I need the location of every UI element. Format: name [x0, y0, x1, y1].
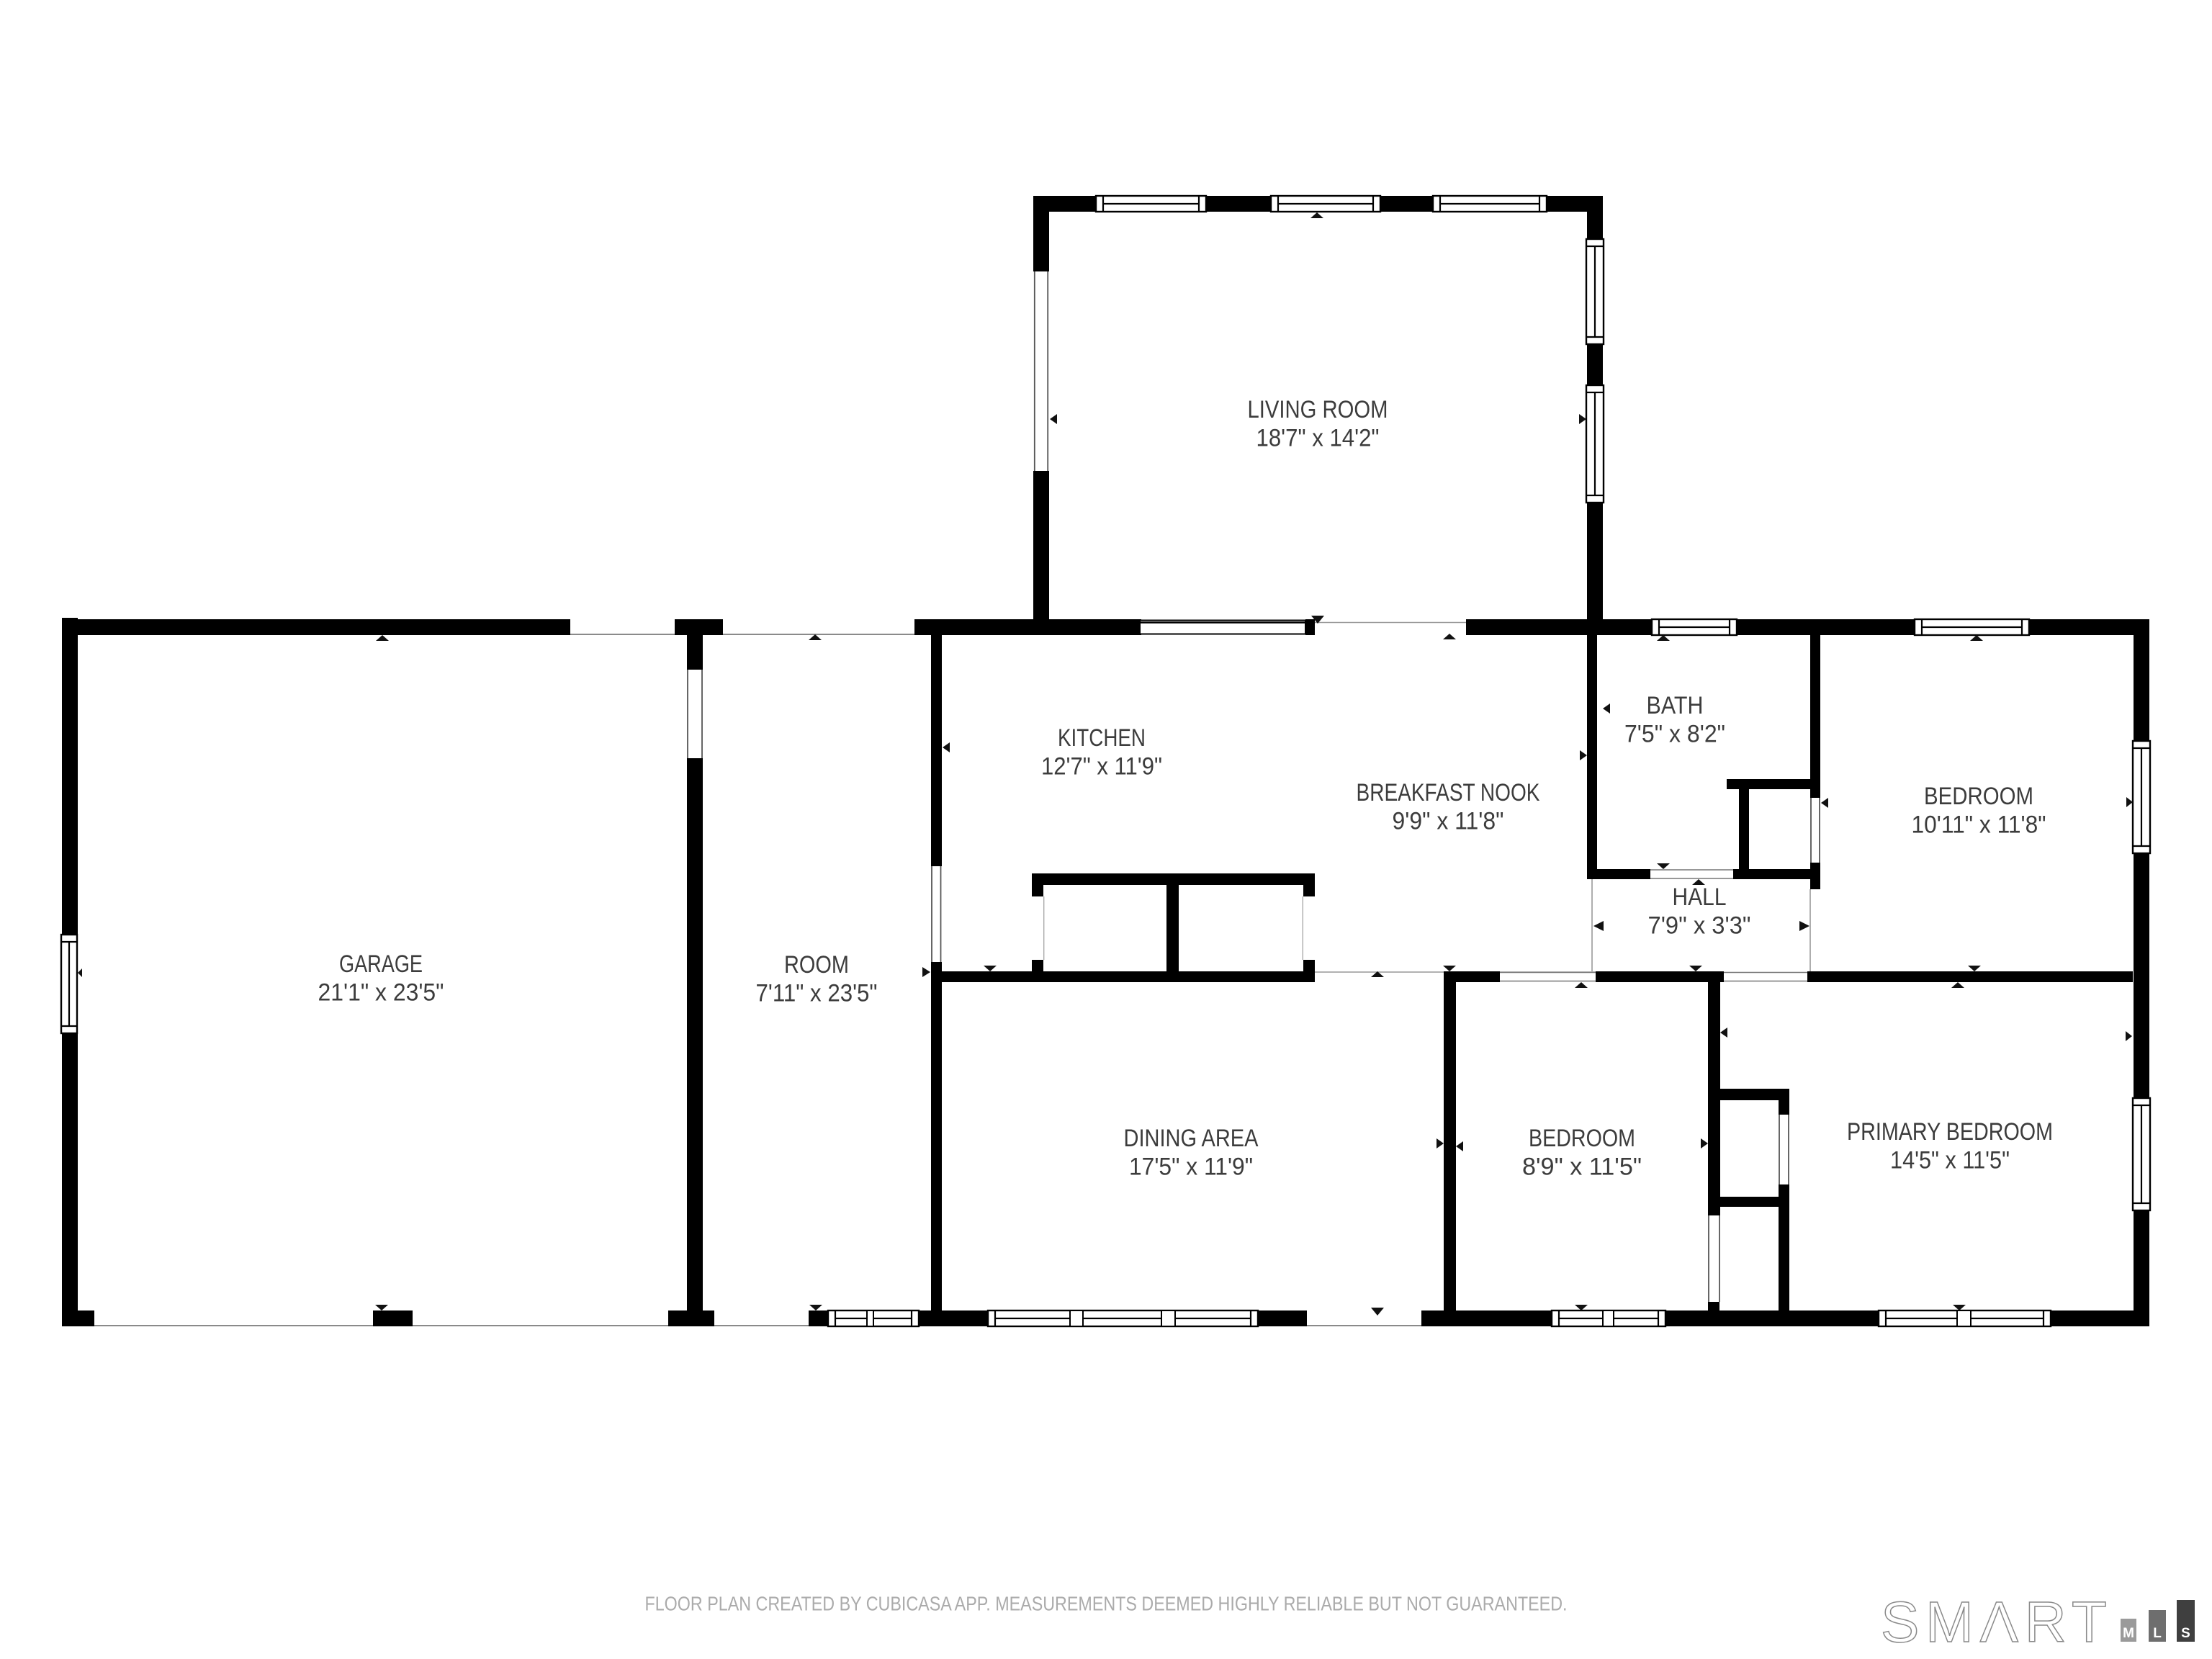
svg-text:HALL: HALL: [1673, 884, 1727, 911]
svg-text:7'9" x 3'3": 7'9" x 3'3": [1648, 912, 1751, 940]
svg-text:12'7" x 11'9": 12'7" x 11'9": [1041, 753, 1162, 781]
svg-text:7'11" x 23'5": 7'11" x 23'5": [756, 980, 878, 1007]
svg-text:SMΛRT: SMΛRT: [1881, 1590, 2113, 1654]
svg-text:LIVING ROOM: LIVING ROOM: [1248, 396, 1388, 423]
svg-text:7'5" x 8'2": 7'5" x 8'2": [1624, 721, 1725, 748]
svg-text:9'9" x 11'8": 9'9" x 11'8": [1393, 808, 1504, 835]
svg-text:S: S: [2181, 1626, 2190, 1641]
svg-text:BATH: BATH: [1647, 692, 1704, 719]
svg-text:BEDROOM: BEDROOM: [1924, 783, 2033, 810]
svg-text:17'5" x 11'9": 17'5" x 11'9": [1129, 1154, 1253, 1181]
svg-text:PRIMARY BEDROOM: PRIMARY BEDROOM: [1847, 1118, 2053, 1146]
svg-text:M: M: [2123, 1626, 2134, 1641]
svg-text:GARAGE: GARAGE: [339, 950, 423, 978]
svg-text:BEDROOM: BEDROOM: [1529, 1125, 1635, 1152]
svg-text:21'1" x 23'5": 21'1" x 23'5": [318, 979, 444, 1007]
svg-text:DINING AREA: DINING AREA: [1124, 1125, 1259, 1152]
svg-text:FLOOR PLAN CREATED BY CUBICASA: FLOOR PLAN CREATED BY CUBICASA APP. MEAS…: [645, 1593, 1568, 1615]
svg-text:BREAKFAST NOOK: BREAKFAST NOOK: [1357, 779, 1540, 806]
svg-text:ROOM: ROOM: [784, 951, 849, 979]
svg-text:8'9" x 11'5": 8'9" x 11'5": [1522, 1154, 1642, 1181]
svg-text:18'7" x 14'2": 18'7" x 14'2": [1256, 425, 1380, 452]
svg-text:14'5" x 11'5": 14'5" x 11'5": [1890, 1147, 2010, 1174]
svg-text:10'11" x 11'8": 10'11" x 11'8": [1912, 811, 2046, 839]
svg-text:KITCHEN: KITCHEN: [1058, 724, 1146, 752]
svg-text:L: L: [2153, 1626, 2162, 1641]
